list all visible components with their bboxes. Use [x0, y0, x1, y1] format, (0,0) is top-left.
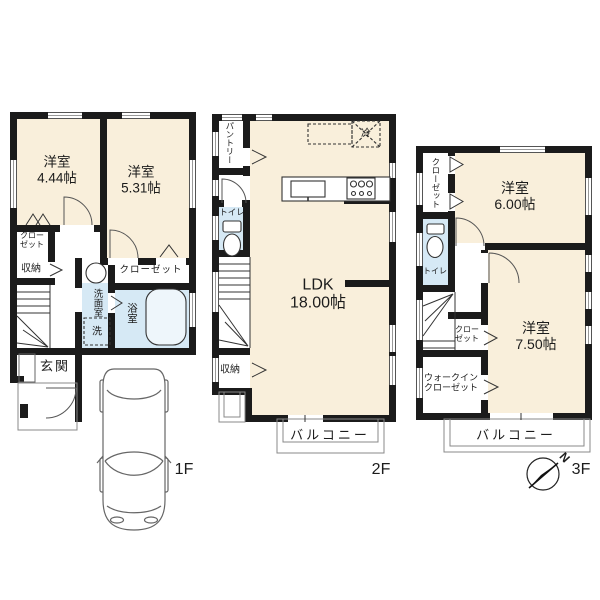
- cupboard: [308, 124, 352, 144]
- stairs-2f: [219, 257, 250, 348]
- floor-label-1f: 1F: [175, 461, 194, 479]
- label-bathroom-1f: 浴室: [126, 303, 138, 324]
- label-entrance-1f: 玄関: [40, 360, 70, 375]
- label-closet-small-3f: クローゼット: [455, 325, 479, 343]
- label-ldk-2f: LDK18.00帖: [290, 277, 346, 314]
- label-toilet-3f: トイレ: [423, 266, 447, 275]
- label-wic-3f: ウォークインクローゼット: [424, 373, 478, 394]
- label-storage-2f: 収納: [220, 364, 240, 376]
- label-fridge-2f: 冷: [361, 128, 371, 140]
- label-toilet-2f: トイレ: [219, 208, 245, 218]
- label-washroom-1f: 洗面室: [91, 289, 102, 318]
- shoe-cabinet-1f: [19, 354, 35, 382]
- label-bedroom2-3f: 洋室7.50帖: [515, 320, 556, 352]
- label-bedroom1-1f: 洋室4.44帖: [37, 154, 77, 185]
- floor-plan: 洋室4.44帖 洋室5.31帖 クローゼット 収納 洗面室 洗 クローゼット 浴…: [0, 0, 600, 600]
- label-storage-1f: 収納: [21, 263, 41, 275]
- toilet-bowl-3f: [427, 237, 443, 258]
- floor-label-2f: 2F: [372, 461, 391, 479]
- kitchen-sink: [291, 181, 325, 197]
- door-bedroom2-1f: [110, 230, 138, 258]
- entrance-step: [20, 404, 28, 418]
- toilet-tank-2f: [223, 221, 241, 232]
- bathtub: [146, 289, 186, 345]
- toilet-bowl-2f: [224, 234, 241, 256]
- label-pantry-2f: パントリー: [224, 122, 234, 165]
- label-closet-small-1f: クローゼット: [20, 231, 44, 249]
- toilet-tank-3f: [427, 224, 444, 234]
- door-bedroom1-1f: [64, 197, 92, 225]
- label-balcony-2f: バルコニー: [290, 429, 370, 444]
- label-bedroom2-1f: 洋室5.31帖: [121, 164, 161, 195]
- floor-label-3f: 3F: [572, 461, 591, 479]
- label-washer-1f: 洗: [92, 326, 102, 338]
- car: [97, 369, 171, 530]
- label-balcony-3f: バルコニー: [476, 429, 556, 444]
- label-bedroom1-3f: 洋室6.00帖: [494, 180, 535, 212]
- label-closet-1f: クローゼット: [119, 266, 182, 277]
- compass: [527, 458, 559, 490]
- door-bedroom2-3f: [489, 253, 519, 283]
- door-bedroom1-3f: [456, 218, 484, 246]
- stairs-1f: [17, 285, 50, 348]
- label-closet-left-3f: クローゼット: [430, 158, 440, 209]
- door-entrance-1f: [46, 388, 76, 418]
- wash-basin: [86, 263, 106, 283]
- door-vestibule-2f: [222, 179, 246, 203]
- stairs-3f: [423, 292, 455, 350]
